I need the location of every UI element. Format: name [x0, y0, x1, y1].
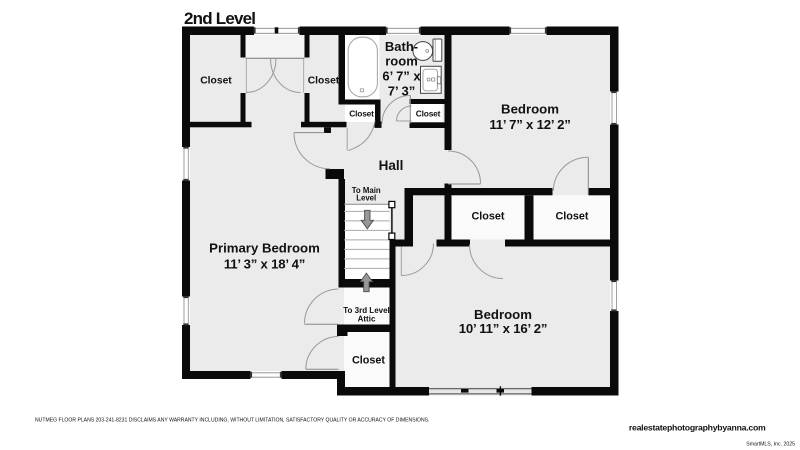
svg-text:Closet: Closet [556, 211, 589, 223]
svg-text:SmartMLS, Inc. 2025: SmartMLS, Inc. 2025 [746, 442, 795, 448]
svg-text:room: room [385, 54, 418, 69]
svg-text:Closet: Closet [200, 76, 232, 87]
svg-text:Closet: Closet [352, 355, 385, 367]
svg-text:Closet: Closet [308, 76, 340, 87]
svg-text:Closet: Closet [416, 109, 441, 119]
svg-text:11’ 7” x 12’ 2”: 11’ 7” x 12’ 2” [489, 117, 570, 132]
svg-text:NUTMEG FLOOR PLANS 203-241-823: NUTMEG FLOOR PLANS 203-241-8231 DISCLAIM… [35, 418, 429, 424]
svg-text:2nd Level: 2nd Level [184, 9, 255, 28]
svg-text:Level: Level [356, 193, 376, 202]
svg-text:Bath-: Bath- [385, 39, 418, 54]
svg-text:realestatephotographybyanna.co: realestatephotographybyanna.com [629, 423, 766, 433]
svg-text:Closet: Closet [472, 211, 505, 223]
svg-text:Bedroom: Bedroom [474, 307, 532, 322]
svg-text:10’ 11” x 16’ 2”: 10’ 11” x 16’ 2” [459, 321, 547, 336]
svg-text:Attic: Attic [358, 314, 376, 323]
svg-text:Bedroom: Bedroom [501, 102, 559, 117]
svg-text:Primary Bedroom: Primary Bedroom [209, 240, 320, 255]
svg-text:6’ 7” x: 6’ 7” x [382, 69, 421, 84]
svg-text:11’ 3” x 18’ 4”: 11’ 3” x 18’ 4” [224, 256, 305, 271]
svg-text:Closet: Closet [349, 109, 374, 119]
svg-text:Hall: Hall [379, 158, 404, 173]
